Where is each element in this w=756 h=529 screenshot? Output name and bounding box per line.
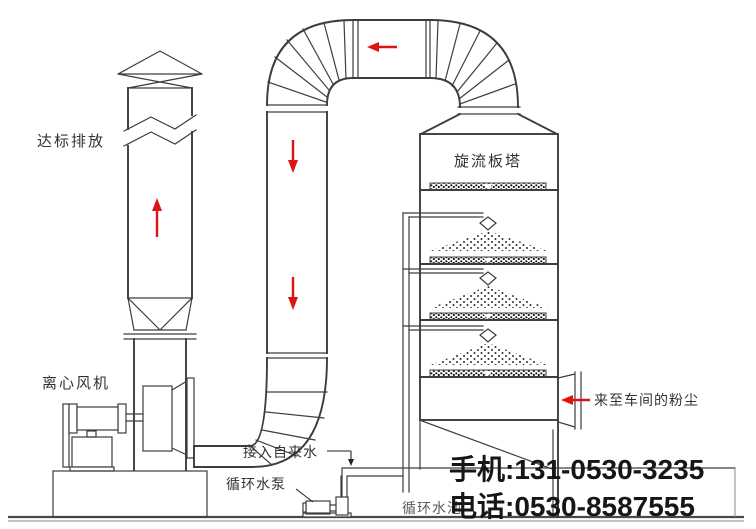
pump-leader (296, 489, 313, 502)
fan-base-platform (53, 471, 207, 517)
pump-discharge-pipe (341, 476, 403, 497)
flow-arrow-down-icon-2 (288, 277, 298, 310)
top-duct (353, 20, 430, 78)
spray-nozzle-1 (480, 217, 496, 230)
label-fan: 离心风机 (42, 372, 110, 393)
flow-arrow-up-icon (152, 198, 162, 237)
spray-branch-pipes (403, 213, 483, 330)
spray-cone-3 (430, 343, 548, 365)
flow-arrow-left-icon-top (367, 42, 397, 52)
contact-phone: 电话:0530-8587555 (449, 485, 695, 525)
spray-cone-2 (430, 286, 548, 308)
riser-pipe (403, 213, 409, 492)
label-tower: 旋流板塔 (454, 150, 522, 171)
stack-break-icon (124, 115, 196, 146)
flow-arrow-down-icon-1 (288, 140, 298, 173)
label-pump: 循环水泵 (226, 474, 286, 494)
swirl-plate-4 (420, 370, 558, 377)
label-tap-water: 接入自来水 (243, 442, 318, 462)
elbow-top-left (267, 20, 353, 105)
spray-nozzle-2 (480, 272, 496, 285)
label-inlet: 来至车间的粉尘 (594, 390, 699, 410)
diagram-canvas: 达标排放 离心风机 旋流板塔 接入自来水 循环水泵 循环水池 来至车间的粉尘 手… (0, 0, 756, 529)
tap-water-leader (327, 451, 354, 466)
tower-inlet-cone (421, 107, 557, 134)
spray-nozzle-3 (480, 329, 496, 342)
label-emission: 达标排放 (37, 130, 105, 151)
fan-motor-icon (70, 431, 114, 471)
stack-cap-icon (118, 51, 202, 88)
stack-transition (124, 298, 196, 339)
spray-cone-1 (430, 231, 548, 251)
elbow-top-right (430, 20, 518, 107)
fan-impeller-icon (143, 386, 172, 451)
swirl-plate-3 (420, 313, 558, 320)
centrifugal-fan (53, 378, 207, 517)
swirl-plate-1 (420, 183, 558, 190)
swirl-plate-2 (420, 257, 558, 264)
contact-mobile: 手机:131-0530-3235 (449, 448, 704, 488)
downcomer-duct (267, 105, 327, 358)
